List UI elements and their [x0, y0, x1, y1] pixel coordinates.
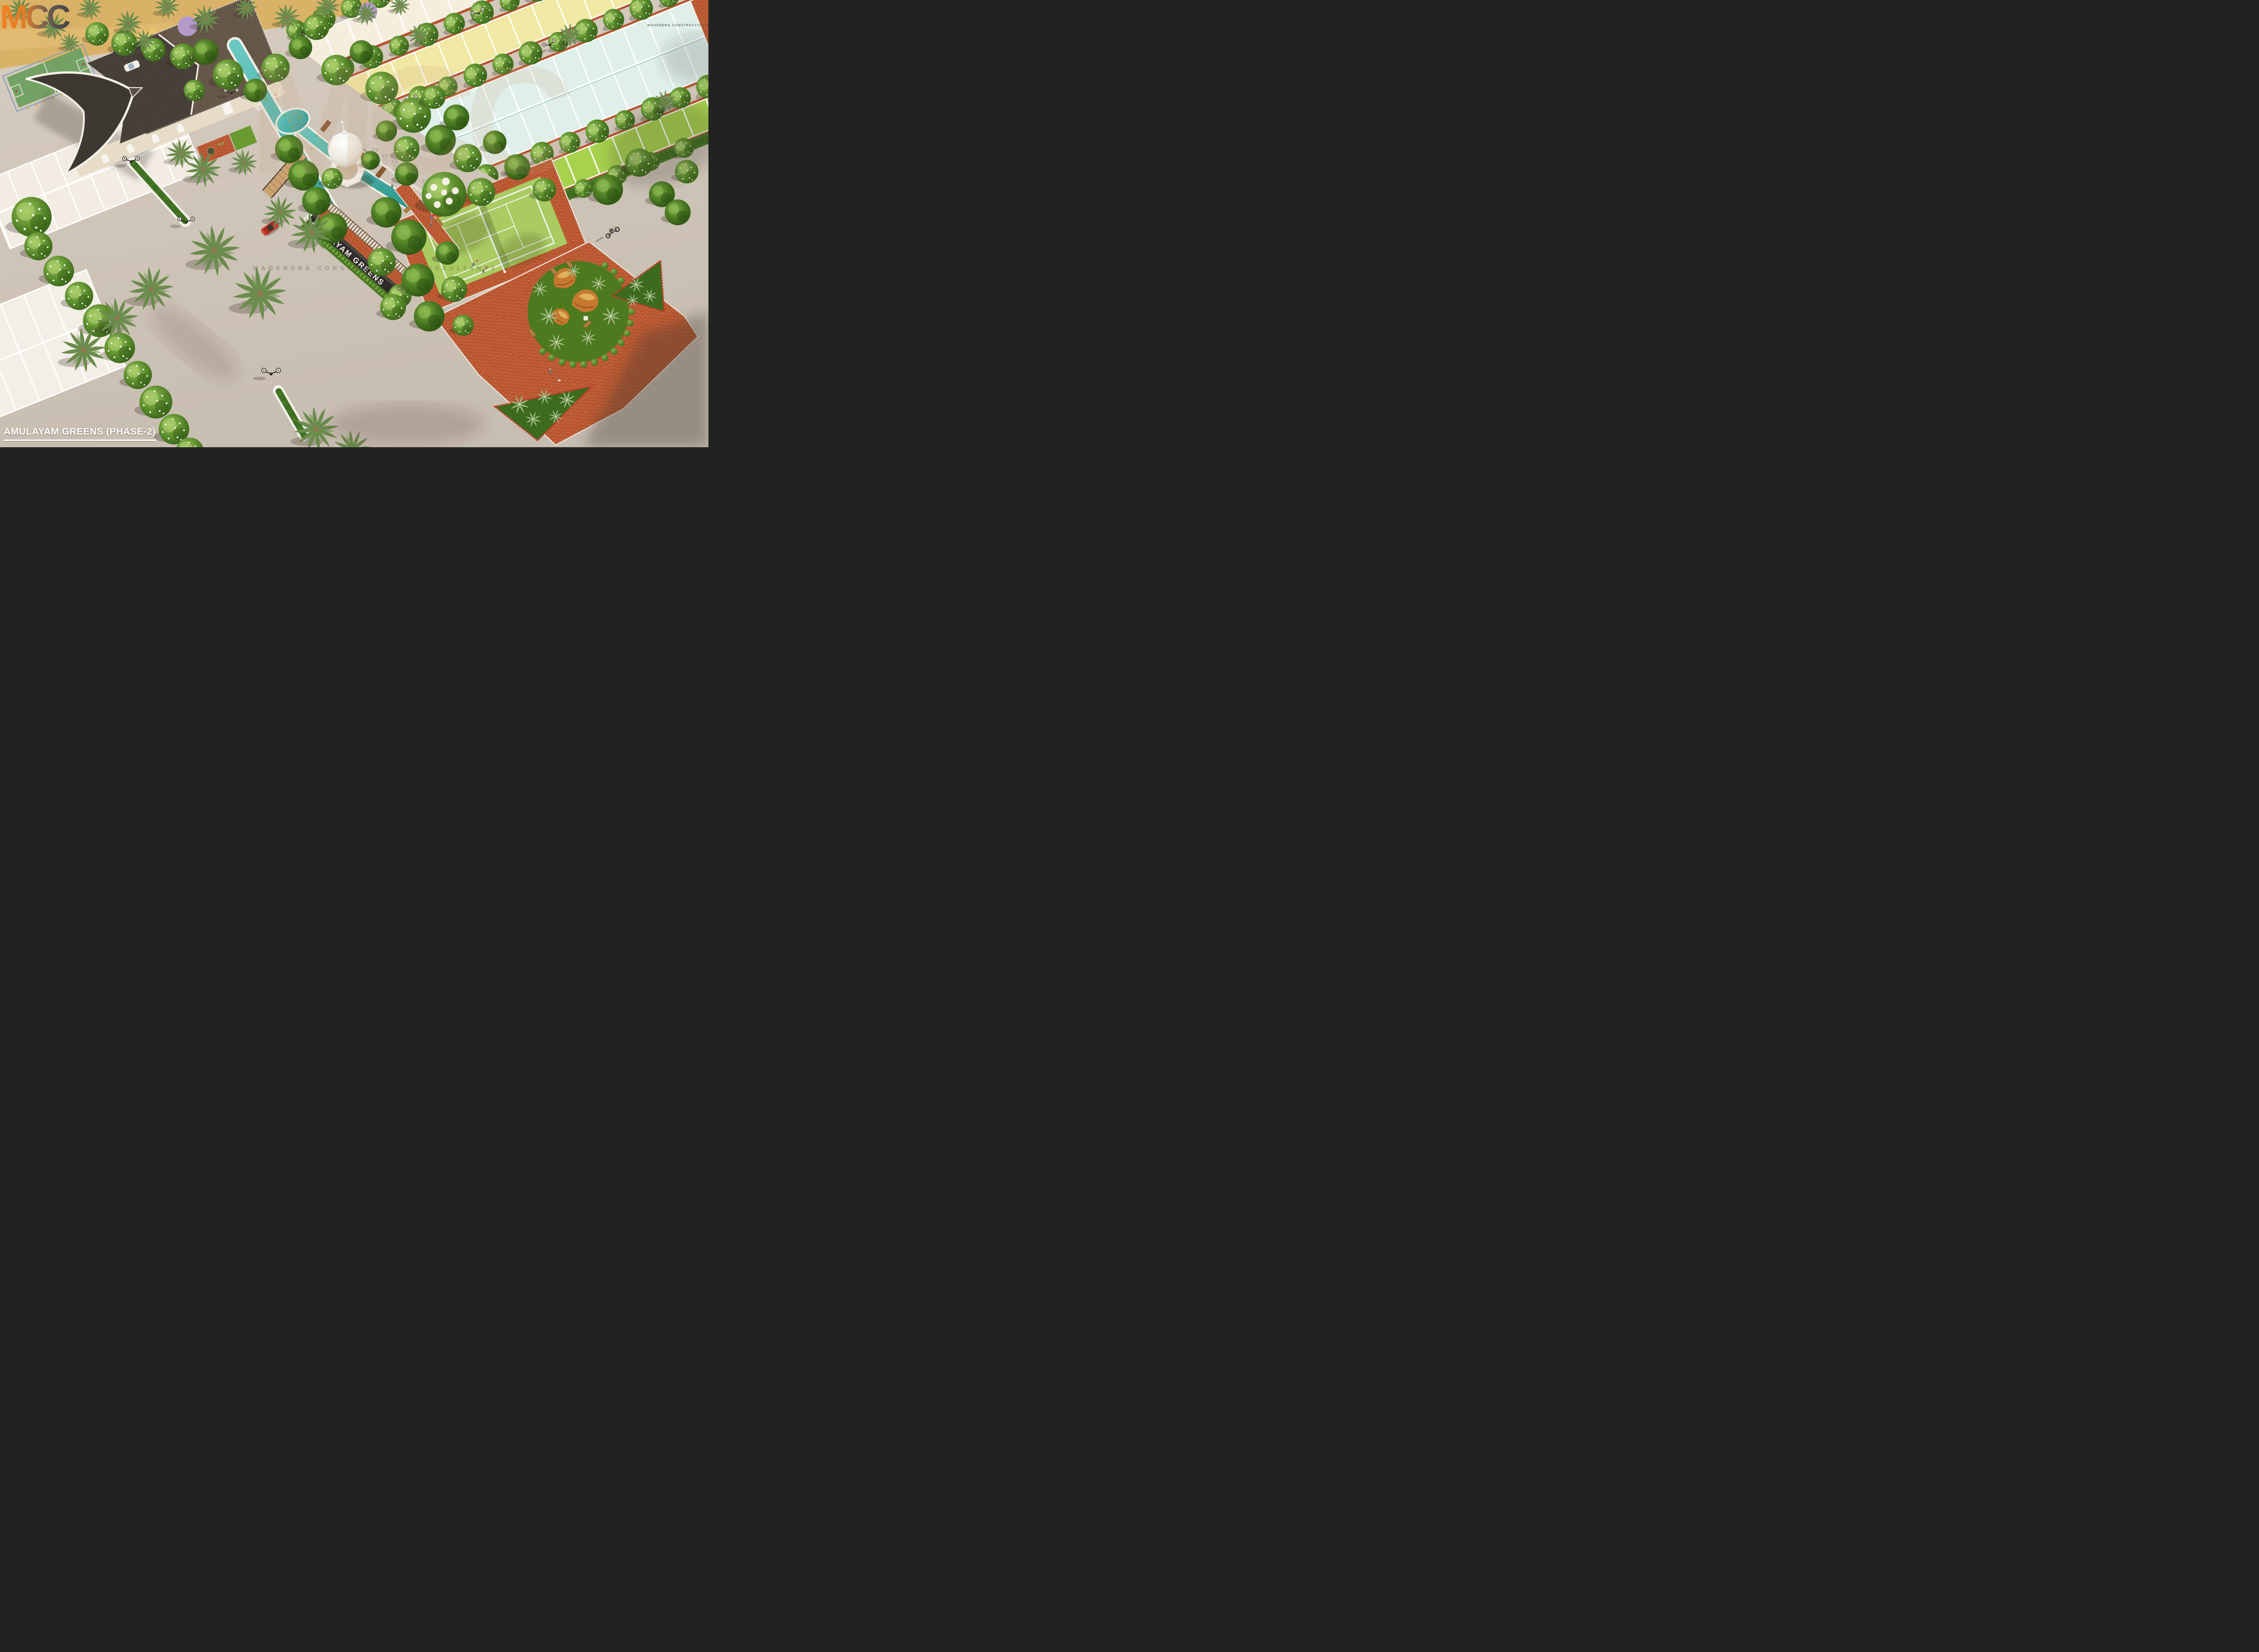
project-title: AMULAYAM GREENS (PHASE-2) — [4, 426, 156, 437]
mcc-logo-text: MCC — [0, 0, 70, 36]
tennis-player — [483, 268, 484, 273]
mcc-logo-subtext: MAGENDRA CONSTRUCTION & CONSULTANTS — [647, 24, 708, 27]
render-canvas: AMULAYAM GREENS — [0, 0, 708, 447]
tennis-player — [473, 262, 474, 266]
project-caption: AMULAYAM GREENS (PHASE-2) — [4, 426, 156, 441]
scene-render: AMULAYAM GREENS — [0, 0, 708, 447]
person-sitting — [391, 183, 393, 188]
title-underline — [4, 440, 156, 441]
mcc-logo: MCC — [0, 0, 99, 36]
